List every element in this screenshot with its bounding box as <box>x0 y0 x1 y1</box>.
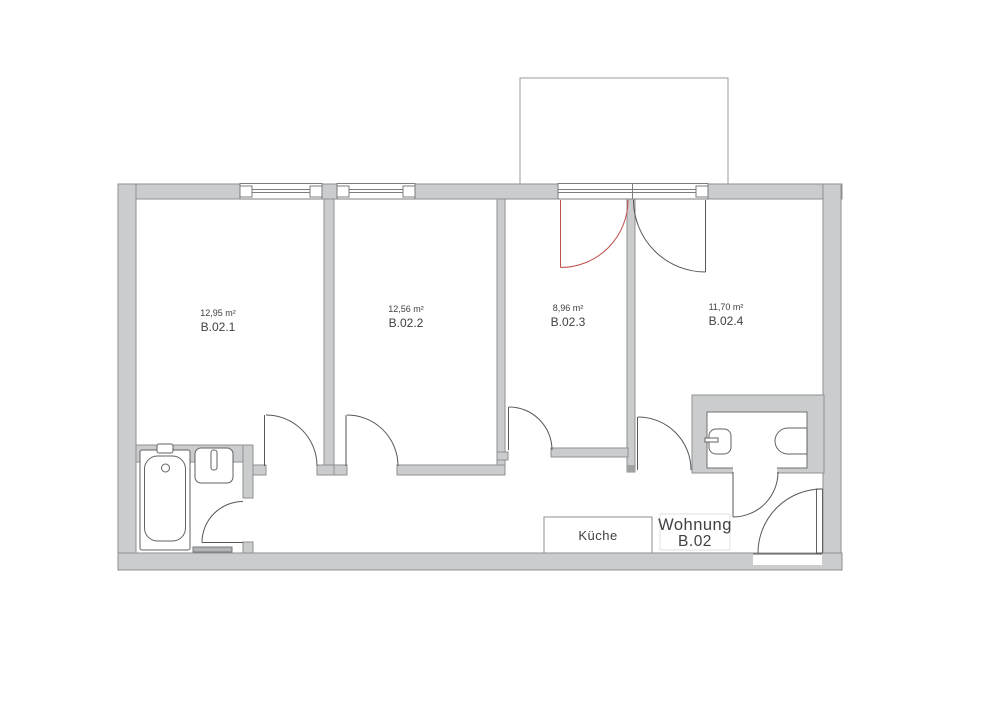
room3-name: B.02.3 <box>551 315 586 329</box>
wall-room4-door-jamb <box>627 465 635 472</box>
wall-bottom <box>118 553 842 570</box>
room-label-4: 11,70 m² B.02.4 <box>709 302 744 328</box>
wall-right <box>823 184 841 570</box>
apartment-label-line1: Wohnung <box>658 516 732 534</box>
bathroom-fixtures <box>140 444 233 552</box>
wall-room2-bottom-left <box>334 465 347 475</box>
wc-door-opening <box>733 466 777 475</box>
wall-room1-room2 <box>324 199 334 475</box>
balcony-door-left-leaf <box>561 200 629 268</box>
kitchen-label-box: Küche <box>544 517 652 553</box>
balcony <box>520 78 728 185</box>
room1-area: 12,95 m² <box>200 308 236 318</box>
wall-room3-room4 <box>627 199 635 472</box>
door-room4 <box>638 417 692 470</box>
door-wc <box>733 472 778 517</box>
room2-name: B.02.2 <box>389 316 424 330</box>
door-room2 <box>346 415 398 466</box>
room1-name: B.02.1 <box>201 320 236 334</box>
wall-left <box>118 184 136 570</box>
wall-room1-bottom-right <box>317 465 334 475</box>
bathroom-sink-tap <box>211 450 217 470</box>
wall-room2-room3 <box>497 199 505 475</box>
window-room1 <box>240 184 322 200</box>
door-entry <box>758 489 823 553</box>
room2-area: 12,56 m² <box>388 304 424 314</box>
room4-area: 11,70 m² <box>709 302 744 312</box>
room-label-2: 12,56 m² B.02.2 <box>388 304 424 330</box>
door-room3 <box>509 407 553 450</box>
labels: 12,95 m² B.02.1 12,56 m² B.02.2 8,96 m² … <box>200 302 743 553</box>
wall-top <box>118 184 842 199</box>
toilet <box>775 428 807 454</box>
door-bathroom <box>202 502 243 543</box>
apartment-label-box: Wohnung B.02 <box>658 514 732 550</box>
wall-room2-bottom-right <box>397 465 505 475</box>
room4-name: B.02.4 <box>709 314 744 328</box>
bathroom-radiator <box>193 547 232 552</box>
balcony-door-right-leaf <box>634 200 706 272</box>
window-room2 <box>337 184 415 200</box>
floor-plan-drawing: 12,95 m² B.02.1 12,56 m² B.02.2 8,96 m² … <box>0 0 999 706</box>
bathtub-tap <box>157 444 173 453</box>
wc-sink-tap <box>705 438 718 442</box>
room3-area: 8,96 m² <box>553 303 584 313</box>
wall-bathroom-right-lower <box>243 542 253 553</box>
doors <box>202 200 823 553</box>
room-label-1: 12,95 m² B.02.1 <box>200 308 236 334</box>
wall-room3-bottom <box>551 448 628 457</box>
wall-bathroom-right-upper <box>243 445 253 498</box>
wall-room3-door-jamb <box>497 452 508 460</box>
kitchen-label: Küche <box>578 528 617 543</box>
apartment-label-line2: B.02 <box>678 533 712 550</box>
room-label-3: 8,96 m² B.02.3 <box>551 303 586 329</box>
floor-plan-page: 12,95 m² B.02.1 12,56 m² B.02.2 8,96 m² … <box>0 0 999 706</box>
entry-door-opening <box>753 554 822 565</box>
door-room1 <box>265 415 318 466</box>
balcony-door-window <box>558 184 708 200</box>
bathtub-drain <box>162 464 170 472</box>
wall-room1-bottom-left <box>253 465 266 475</box>
